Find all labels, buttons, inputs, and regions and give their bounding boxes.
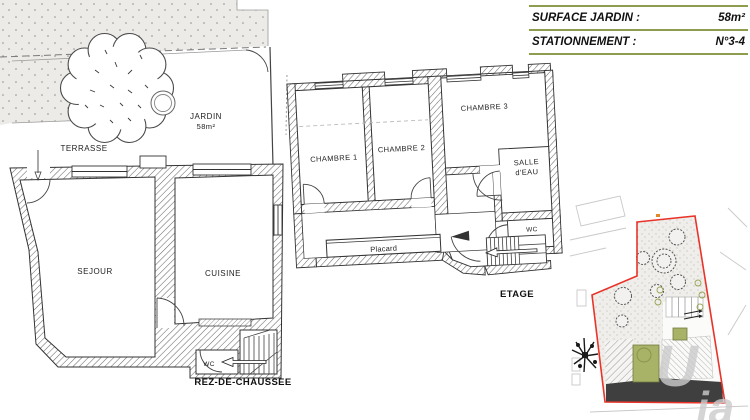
site-plan: U ia — [570, 196, 748, 420]
ground-floor-plan: JARDIN 58m² TERRASSE — [0, 0, 292, 388]
info-label: STATIONNEMENT : — [532, 36, 636, 48]
garden-gate-arc — [246, 50, 268, 72]
jardin-label: JARDIN — [190, 112, 222, 121]
upper-floor-plan: CHAMBRE 1 CHAMBRE 2 CHAMBRE 3 SALLE d'EA… — [287, 63, 564, 300]
info-table: SURFACE JARDIN : 58m² STATIONNEMENT : N°… — [529, 5, 748, 55]
info-table-rule — [529, 53, 748, 55]
tree-icon — [61, 34, 174, 143]
bare-tree-icon — [572, 338, 598, 372]
floor-plan-sheet: JARDIN 58m² TERRASSE — [0, 0, 750, 420]
salle-eau-label-2: d'EAU — [515, 167, 538, 177]
sejour-label: SEJOUR — [77, 267, 112, 276]
cuisine-label: CUISINE — [205, 269, 241, 278]
etage-wc-label: WC — [526, 226, 538, 234]
gf-wc-label: WC — [203, 361, 214, 368]
cuisine-room — [175, 175, 273, 324]
info-value: N°3-4 — [715, 36, 745, 48]
info-label: SURFACE JARDIN : — [532, 12, 640, 24]
plans-drawing: JARDIN 58m² TERRASSE — [0, 0, 750, 420]
info-value: 58m² — [718, 12, 745, 24]
salle-eau-label-1: SALLE — [513, 157, 539, 167]
watermark-ia: ia — [696, 382, 734, 420]
round-table-icon — [151, 91, 175, 115]
info-row-surface-jardin: SURFACE JARDIN : 58m² — [529, 7, 748, 29]
ground-floor-title: REZ-DE-CHAUSSEE — [194, 377, 291, 388]
watermark-u: U — [656, 334, 700, 399]
jardin-area-label: 58m² — [197, 122, 216, 131]
terrasse-label: TERRASSE — [60, 144, 107, 153]
boundary-marker — [656, 214, 660, 217]
salle-eau-room — [499, 146, 552, 213]
chambre1-room — [295, 87, 368, 204]
info-row-stationnement: STATIONNEMENT : N°3-4 — [529, 31, 748, 53]
kitchen-counter — [199, 319, 251, 326]
upper-floor-title: ETAGE — [500, 289, 534, 300]
placard-label: Placard — [370, 244, 397, 254]
